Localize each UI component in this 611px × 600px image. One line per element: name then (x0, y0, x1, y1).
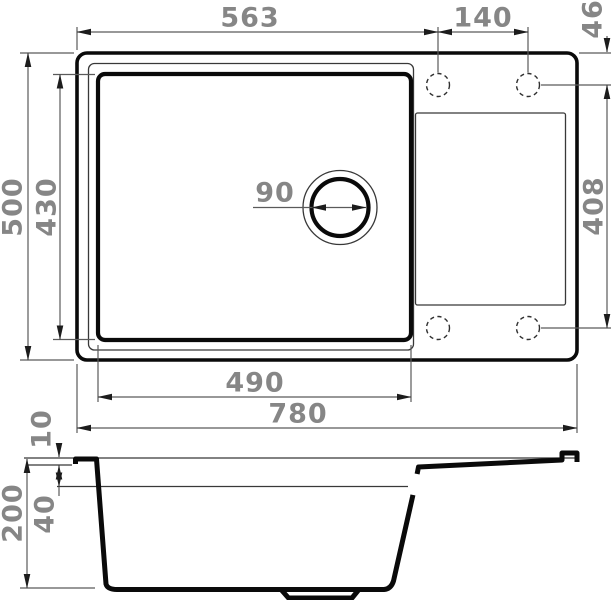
sink-section-profile (76, 453, 578, 590)
dim-label-rim-height: 10 (27, 409, 58, 449)
faucet-hole-bottom-left (427, 317, 450, 340)
dim-label-overall-height: 200 (0, 483, 29, 542)
sink-outer-outline (77, 53, 577, 360)
bowl-rim-outline (89, 64, 414, 351)
faucet-hole-top-left (427, 74, 450, 97)
dim-label-faucet-hole-spacing: 140 (453, 3, 512, 34)
dim-label-top-edge-to-faucet-hole: 46 (578, 0, 609, 39)
section-view-dimensions: 10 40 200 (0, 409, 95, 588)
dim-label-faucet-hole-rows: 408 (579, 176, 610, 235)
dim-label-drain-diameter: 90 (255, 178, 295, 209)
sink-technical-drawing: 563 140 46 408 500 430 90 490 780 10 40 … (0, 0, 611, 600)
wall-line-break (413, 474, 417, 495)
dim-label-overall-depth: 500 (0, 177, 29, 236)
dim-label-ledge-depth: 40 (30, 494, 61, 534)
drainboard-outline (416, 113, 566, 305)
faucet-hole-top-right (517, 74, 540, 97)
section-view (24, 453, 577, 598)
dim-label-left-edge-to-faucet-hole: 563 (220, 3, 279, 34)
top-view (77, 53, 577, 360)
dim-label-bowl-depth: 430 (32, 177, 63, 236)
dim-label-bowl-width: 490 (225, 368, 284, 399)
sink-technical-drawing-page: 563 140 46 408 500 430 90 490 780 10 40 … (0, 0, 611, 600)
faucet-hole-bottom-right (517, 317, 540, 340)
dim-label-overall-width: 780 (268, 399, 327, 430)
